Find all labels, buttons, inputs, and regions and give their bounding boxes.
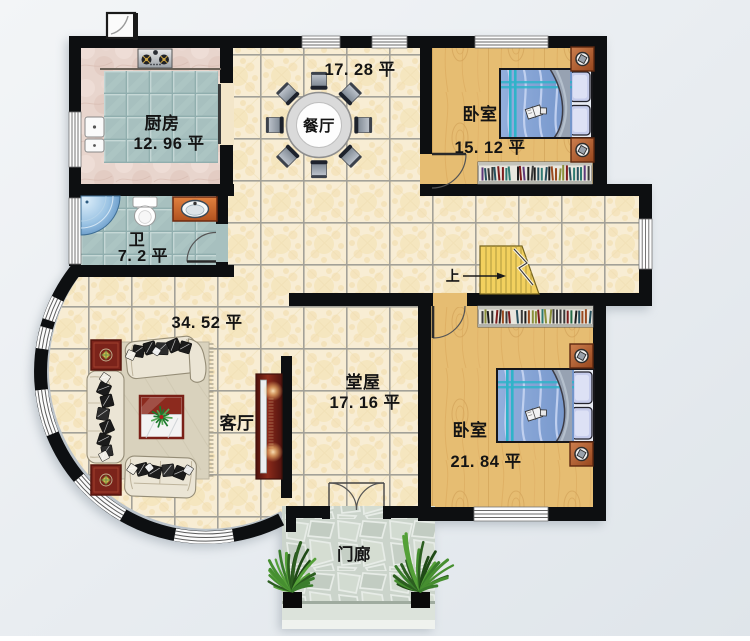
svg-text:7. 2 平: 7. 2 平 <box>118 247 168 265</box>
svg-text:12. 96 平: 12. 96 平 <box>134 135 205 153</box>
svg-text:门廊: 门廊 <box>337 544 371 564</box>
svg-text:卧室: 卧室 <box>463 104 498 124</box>
svg-text:卧室: 卧室 <box>453 420 488 440</box>
svg-text:客厅: 客厅 <box>219 413 255 433</box>
svg-text:21. 84 平: 21. 84 平 <box>451 453 522 471</box>
svg-text:堂屋: 堂屋 <box>346 372 381 392</box>
svg-text:17. 16 平: 17. 16 平 <box>330 394 401 412</box>
svg-text:餐厅: 餐厅 <box>302 116 335 135</box>
svg-text:15. 12 平: 15. 12 平 <box>455 139 526 157</box>
svg-text:34. 52 平: 34. 52 平 <box>172 314 243 332</box>
svg-text:17. 28 平: 17. 28 平 <box>325 61 396 79</box>
svg-text:上: 上 <box>446 268 461 284</box>
svg-text:厨房: 厨房 <box>145 113 180 133</box>
svg-text:卫: 卫 <box>129 232 146 249</box>
